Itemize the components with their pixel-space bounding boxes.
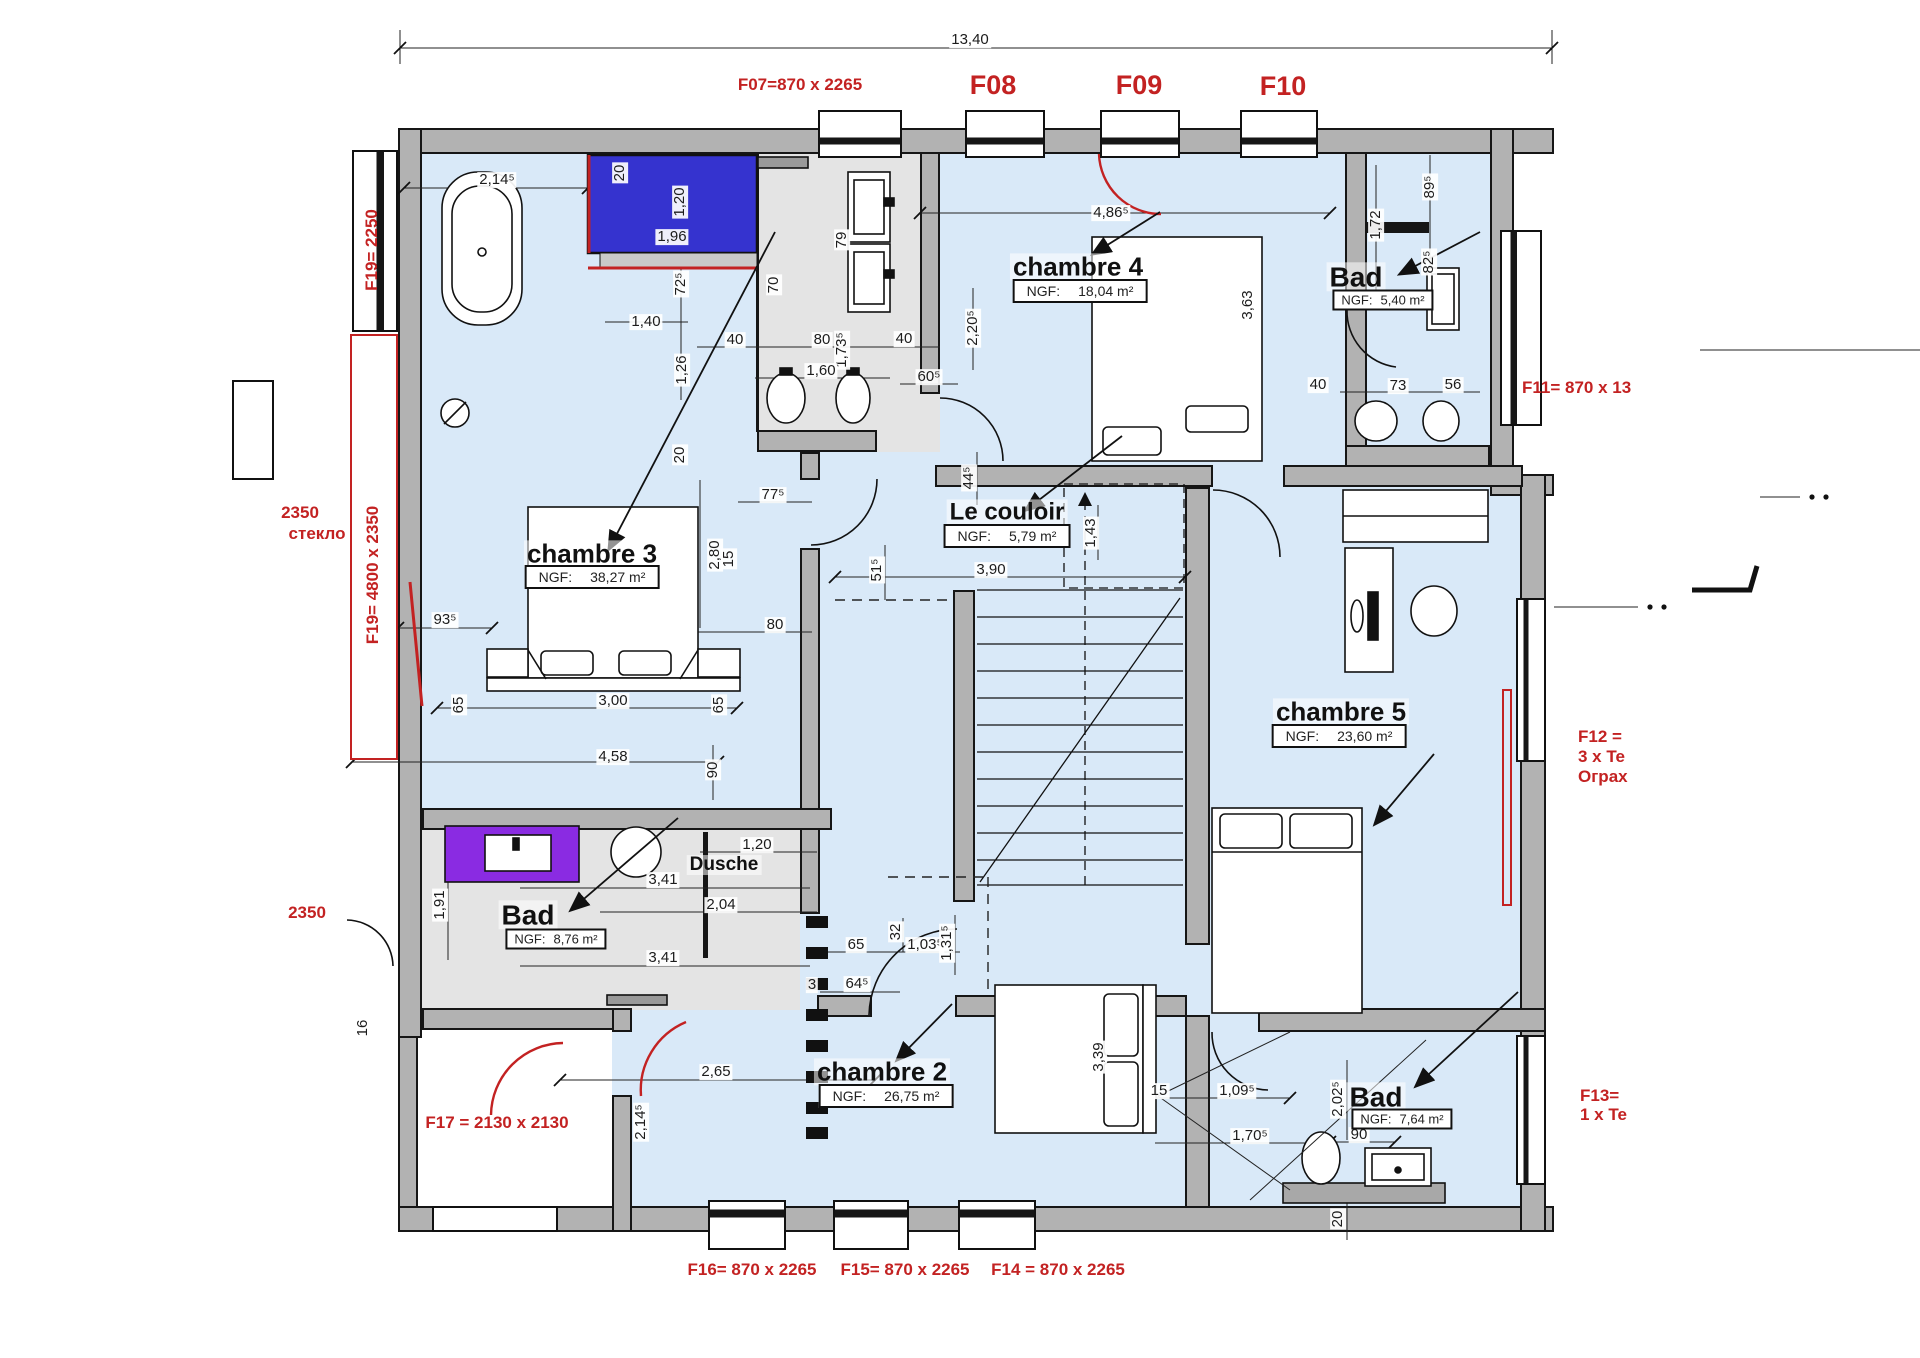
office-chair [1411, 586, 1457, 636]
dimension-label: 2,65 [699, 1064, 732, 1080]
red-marker-chambre5 [1503, 690, 1511, 905]
area-value: 5,40 m² [1380, 293, 1424, 308]
dimension-label: 3 [806, 977, 818, 993]
window-schedule-label: стекло [289, 525, 346, 543]
dimension-label: 80 [765, 617, 786, 633]
area-box: NGF:26,75 m² [819, 1084, 954, 1108]
dimension-label: 44⁵ [961, 465, 977, 492]
dimension-label: 1,43 [1083, 516, 1099, 549]
dimension-label: 16 [355, 1018, 371, 1039]
dimension-label: 1,40 [629, 314, 662, 330]
dimension-label: 3,63 [1240, 288, 1256, 321]
room-label-bad: Bad [1327, 262, 1386, 291]
dimension-label: 1,26 [674, 353, 690, 386]
dimension-label: 1,96 [655, 229, 688, 245]
window-schedule-label: 3 x Te [1578, 748, 1625, 766]
dimension-label: 1,72 [1368, 208, 1384, 241]
window-f08 [965, 110, 1045, 158]
dimension-label: 56 [1443, 377, 1464, 393]
dimension-label: 65 [451, 695, 467, 716]
dimension-label: 70 [766, 275, 782, 296]
bed-chambre2 [995, 985, 1156, 1133]
dimension-label: 90 [705, 760, 721, 781]
dimension-label: 93⁵ [432, 612, 459, 628]
window-f12 [1516, 598, 1546, 762]
window-schedule-label: 2350 [288, 904, 326, 922]
dimension-label: 1,20 [672, 185, 688, 218]
double-sink [848, 172, 894, 312]
dimension-label: 1,91 [432, 888, 448, 921]
window-schedule-label: F10 [1260, 72, 1307, 100]
area-value: 8,76 m² [553, 932, 597, 947]
dimension-label: 80 [812, 332, 833, 348]
area-box: NGF:23,60 m² [1272, 724, 1407, 748]
dimension-label: 77⁵ [760, 487, 787, 503]
dimension-label: 2,14⁵ [477, 172, 516, 188]
window-schedule-label: F14 = 870 x 2265 [991, 1261, 1125, 1279]
room-label-chambre-2: chambre 2 [814, 1058, 950, 1085]
terrace-opening [432, 1206, 558, 1232]
dimension-label: 60⁵ [916, 369, 943, 385]
window-f16 [708, 1200, 786, 1250]
area-label: NGF: [958, 528, 991, 544]
area-label: NGF: [1360, 1112, 1391, 1127]
room-label-bad: Bad [499, 900, 558, 929]
area-value: 23,60 m² [1337, 728, 1392, 744]
dimension-label: 1,70⁵ [1230, 1128, 1269, 1144]
dimension-label: 15 [721, 549, 737, 570]
window-schedule-label: F07=870 x 2265 [738, 76, 862, 94]
dimension-label: 13,40 [949, 32, 991, 48]
window-schedule-label: F08 [970, 71, 1017, 99]
window-schedule-label: F17 = 2130 x 2130 [425, 1114, 568, 1132]
dimension-label: 2,04 [704, 897, 737, 913]
area-label: NGF: [833, 1088, 866, 1104]
area-box: NGF:5,79 m² [944, 524, 1071, 548]
room-label-chambre-5: chambre 5 [1273, 698, 1409, 725]
floor-plan-canvas: 13,402,14⁵201,201,9672⁵1,4040801,73⁵401,… [0, 0, 1920, 1358]
area-label: NGF: [1027, 283, 1060, 299]
glass-panel-left [232, 380, 274, 480]
dimension-label: 82⁵ [1421, 249, 1437, 276]
dimension-label: 64⁵ [844, 976, 871, 992]
window-schedule-label: F13= [1580, 1087, 1619, 1105]
dimension-label: 3,39 [1091, 1040, 1107, 1073]
dimension-label: 40 [1308, 377, 1329, 393]
floor-drain-icon [441, 399, 469, 427]
area-value: 18,04 m² [1078, 283, 1133, 299]
dimension-label: 3,41 [646, 872, 679, 888]
dimension-label: 51⁵ [869, 557, 885, 584]
dimension-label: 2,02⁵ [1330, 1079, 1346, 1118]
window-schedule-label: F19= 4800 x 2350 [364, 506, 382, 644]
dimension-label: 20 [1330, 1209, 1346, 1230]
dimension-label: 2,14⁵ [633, 1102, 649, 1141]
dimension-label: 89⁵ [1422, 174, 1438, 201]
area-value: 38,27 m² [590, 569, 645, 585]
window-schedule-label: F09 [1116, 71, 1163, 99]
area-box: NGF:7,64 m² [1351, 1109, 1452, 1130]
dimension-label: 20 [612, 163, 628, 184]
dimension-label: 3,41 [646, 950, 679, 966]
radiator [758, 157, 808, 168]
dimension-label: 65 [846, 937, 867, 953]
dimension-label: 1,09⁵ [1217, 1083, 1256, 1099]
window-schedule-label: 1 x Te [1580, 1106, 1627, 1124]
area-label: NGF: [539, 569, 572, 585]
dimension-label: 1,20 [740, 837, 773, 853]
room-label-chambre-3: chambre 3 [524, 540, 660, 567]
window-schedule-label: 2350 [281, 504, 319, 522]
area-box: NGF:8,76 m² [505, 929, 606, 950]
area-value: 26,75 m² [884, 1088, 939, 1104]
dimension-label: 40 [725, 332, 746, 348]
bed-chambre3 [487, 507, 740, 691]
dimension-label: 4,86⁵ [1091, 205, 1130, 221]
dimension-label: 3,00 [596, 693, 629, 709]
room-label-le-couloir: Le couloir [947, 499, 1068, 524]
window-f10 [1240, 110, 1318, 158]
dimension-label: 65 [711, 695, 727, 716]
area-box: NGF:38,27 m² [525, 565, 660, 589]
dimension-label: 20 [672, 445, 688, 466]
dimension-label: 15 [1149, 1083, 1170, 1099]
window-schedule-label: F12 = [1578, 728, 1622, 746]
area-label: NGF: [514, 932, 545, 947]
dimension-label: 4,58 [596, 749, 629, 765]
dimension-label: 32 [888, 922, 904, 943]
area-value: 5,79 m² [1009, 528, 1056, 544]
room-label-chambre-4: chambre 4 [1010, 253, 1146, 280]
dimension-label: 1,60 [804, 363, 837, 379]
dimension-label: 2,20⁵ [965, 308, 981, 347]
dimension-label: 79 [834, 230, 850, 251]
dimension-label: 73 [1388, 378, 1409, 394]
dimension-label: 72⁵ [673, 271, 689, 298]
window-schedule-label: F15= 870 x 2265 [840, 1261, 969, 1279]
window-f13 [1516, 1035, 1546, 1185]
window-schedule-label: F11= 870 x 13 [1522, 379, 1631, 397]
plan-geometry [0, 0, 1920, 1358]
dimension-label: 1,31⁵ [939, 923, 955, 962]
area-box: NGF:18,04 m² [1013, 279, 1148, 303]
area-label: NGF: [1341, 293, 1372, 308]
area-box: NGF:5,40 m² [1332, 290, 1433, 311]
room-label-dusche: Dusche [687, 855, 762, 875]
dimension-label: 40 [894, 331, 915, 347]
window-schedule-label: F16= 870 x 2265 [687, 1261, 816, 1279]
corner-mark [1692, 566, 1757, 590]
area-label: NGF: [1286, 728, 1319, 744]
window-f15 [833, 1200, 909, 1250]
window-f07 [818, 110, 902, 158]
window-schedule-label: F19= 2250 [363, 209, 381, 291]
window-f09 [1100, 110, 1180, 158]
chambre5-furniture [1212, 490, 1488, 1013]
window-f14 [958, 1200, 1036, 1250]
window-schedule-label: Ограх [1578, 768, 1628, 786]
room-label-bad: Bad [1347, 1082, 1406, 1111]
dimension-label: 3,90 [974, 562, 1007, 578]
area-value: 7,64 m² [1399, 1112, 1443, 1127]
